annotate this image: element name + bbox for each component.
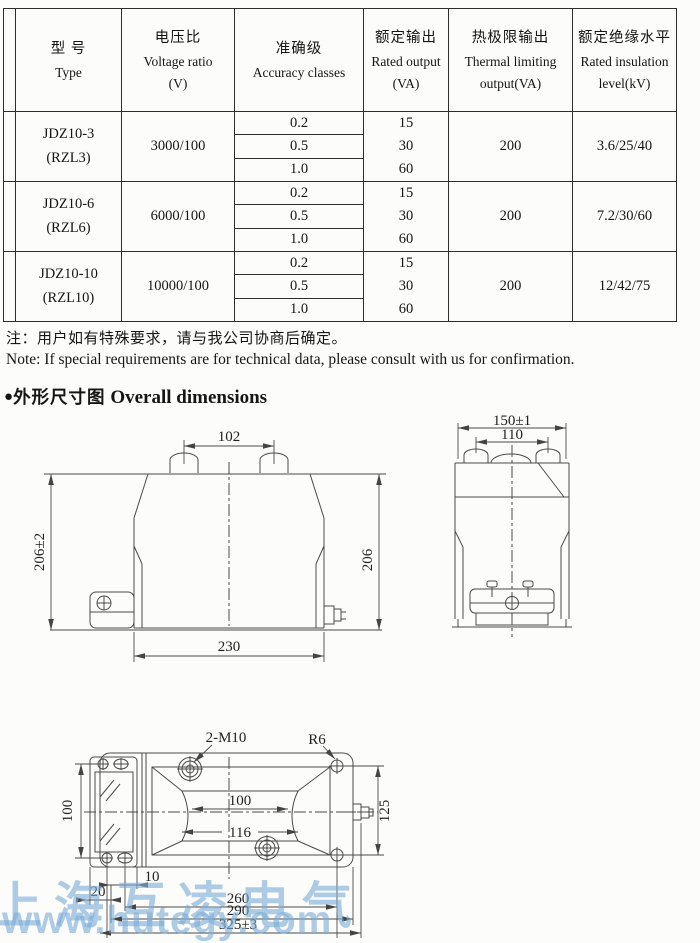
- top-dim-20: 20: [91, 884, 106, 900]
- ratio-cell: 10000/100: [122, 252, 235, 322]
- output-value: 30: [364, 135, 448, 158]
- edge-sliver-cell: [4, 252, 16, 322]
- thermal-cell: 200: [449, 182, 573, 252]
- header-output-en: Rated output: [364, 51, 448, 73]
- output-value: 15: [364, 112, 448, 135]
- note-en: Note: If special requirements are for te…: [6, 351, 575, 369]
- ratio-cell: 3000/100: [122, 112, 235, 182]
- front-view-dimensions: [44, 440, 386, 662]
- model-name: JDZ10-3: [16, 123, 121, 146]
- col-header-thermal: 热极限输出 Thermal limiting output(VA): [449, 9, 573, 112]
- output-value: 60: [364, 228, 448, 251]
- edge-sliver-cell: [4, 112, 16, 182]
- output-value: 15: [364, 252, 448, 275]
- output-value: 30: [364, 205, 448, 228]
- col-header-type: 型 号 Type: [16, 9, 122, 112]
- insulation-cell: 3.6/25/40: [573, 112, 677, 182]
- accuracy-cell: 0.2: [235, 182, 364, 205]
- ratio-cell: 6000/100: [122, 182, 235, 252]
- header-insulation-unit: level(kV): [573, 73, 676, 95]
- output-value: 15: [364, 182, 448, 205]
- top-dim-window-outer-width: 116: [229, 825, 251, 841]
- model-name: JDZ10-10: [16, 263, 121, 286]
- top-view-drawing: 2-M10 R6 100 116 100 125 10 20 260 290 3…: [60, 695, 460, 943]
- front-dim-left: 206±2: [32, 533, 48, 571]
- header-output-zh: 额定输出: [364, 26, 448, 51]
- accuracy-cell: 1.0: [235, 228, 364, 251]
- header-type-zh: 型 号: [16, 37, 121, 62]
- side-view-drawing: 150±1 110: [450, 413, 700, 688]
- top-dim-10: 10: [145, 869, 160, 885]
- table-row: JDZ10-6 (RZL6) 6000/100 0.2 15 30 60 200…: [4, 182, 677, 205]
- top-dim-window-width: 100: [229, 793, 252, 809]
- insulation-cell: 12/42/75: [573, 252, 677, 322]
- note-zh: 注：用户如有特殊要求，请与我公司协商后确定。: [6, 327, 347, 348]
- bullet-icon: ●: [4, 389, 13, 405]
- front-dim-bottom: 230: [218, 639, 241, 655]
- header-insulation-zh: 额定绝缘水平: [573, 26, 676, 51]
- header-thermal-zh: 热极限输出: [449, 26, 572, 51]
- side-view-outline: [452, 445, 572, 637]
- accuracy-cell: 0.5: [235, 205, 364, 228]
- type-cell: JDZ10-6 (RZL6): [16, 182, 122, 252]
- top-dim-right-height: 125: [377, 800, 393, 823]
- output-value: 60: [364, 298, 448, 321]
- top-dim-left-height: 100: [60, 800, 76, 823]
- model-alt-name: (RZL6): [16, 217, 121, 240]
- front-view-drawing: 102 206±2 206 230: [30, 420, 450, 682]
- accuracy-cell: 1.0: [235, 158, 364, 181]
- insulation-cell: 7.2/30/60: [573, 182, 677, 252]
- edge-sliver-cell: [4, 182, 16, 252]
- section-title-en: Overall dimensions: [110, 387, 267, 408]
- model-alt-name: (RZL3): [16, 147, 121, 170]
- col-header-output: 额定输出 Rated output (VA): [364, 9, 449, 112]
- accuracy-cell: 0.5: [235, 275, 364, 298]
- output-value: 60: [364, 158, 448, 181]
- header-thermal-en: Thermal limiting: [449, 51, 572, 73]
- col-header-ratio: 电压比 Voltage ratio (V): [122, 9, 235, 112]
- datasheet-page: 型 号 Type 电压比 Voltage ratio (V) 准确级 Accur…: [0, 0, 700, 943]
- accuracy-cell: 0.2: [235, 252, 364, 275]
- output-cell: 15 30 60: [364, 252, 449, 322]
- top-thread-label: 2-M10: [206, 730, 247, 746]
- header-accuracy-en: Accuracy classes: [235, 62, 363, 84]
- col-header-insulation: 额定绝缘水平 Rated insulation level(kV): [573, 9, 677, 112]
- header-ratio-zh: 电压比: [122, 26, 234, 51]
- table-row: JDZ10-3 (RZL3) 3000/100 0.2 15 30 60 200…: [4, 112, 677, 135]
- header-row: 型 号 Type 电压比 Voltage ratio (V) 准确级 Accur…: [4, 9, 677, 112]
- top-dim-overall: 325±3: [219, 917, 257, 933]
- header-thermal-unit: output(VA): [449, 73, 572, 95]
- accuracy-cell: 0.2: [235, 112, 364, 135]
- header-ratio-unit: (V): [122, 73, 234, 95]
- top-view-outline: [84, 753, 378, 879]
- section-title-zh: 外形尺寸图: [13, 387, 106, 407]
- type-cell: JDZ10-10 (RZL10): [16, 252, 122, 322]
- table-row: JDZ10-10 (RZL10) 10000/100 0.2 15 30 60 …: [4, 252, 677, 275]
- spec-table: 型 号 Type 电压比 Voltage ratio (V) 准确级 Accur…: [3, 8, 677, 322]
- side-dim-inner: 110: [501, 427, 523, 443]
- output-cell: 15 30 60: [364, 182, 449, 252]
- header-ratio-en: Voltage ratio: [122, 51, 234, 73]
- top-corner-radius-label: R6: [308, 732, 326, 748]
- accuracy-cell: 1.0: [235, 298, 364, 321]
- header-output-unit: (VA): [364, 73, 448, 95]
- header-accuracy-zh: 准确级: [235, 37, 363, 62]
- header-insulation-en: Rated insulation: [573, 51, 676, 73]
- output-cell: 15 30 60: [364, 112, 449, 182]
- model-name: JDZ10-6: [16, 193, 121, 216]
- front-view-outline: [50, 453, 382, 630]
- section-title: ●外形尺寸图 Overall dimensions: [4, 384, 267, 409]
- header-type-en: Type: [16, 62, 121, 84]
- type-cell: JDZ10-3 (RZL3): [16, 112, 122, 182]
- front-dim-right: 206: [360, 548, 376, 571]
- accuracy-cell: 0.5: [235, 135, 364, 158]
- model-alt-name: (RZL10): [16, 287, 121, 310]
- thermal-cell: 200: [449, 252, 573, 322]
- edge-sliver-cell: [4, 9, 16, 112]
- front-dim-top: 102: [218, 429, 241, 445]
- output-value: 30: [364, 275, 448, 298]
- thermal-cell: 200: [449, 112, 573, 182]
- col-header-accuracy: 准确级 Accuracy classes: [235, 9, 364, 112]
